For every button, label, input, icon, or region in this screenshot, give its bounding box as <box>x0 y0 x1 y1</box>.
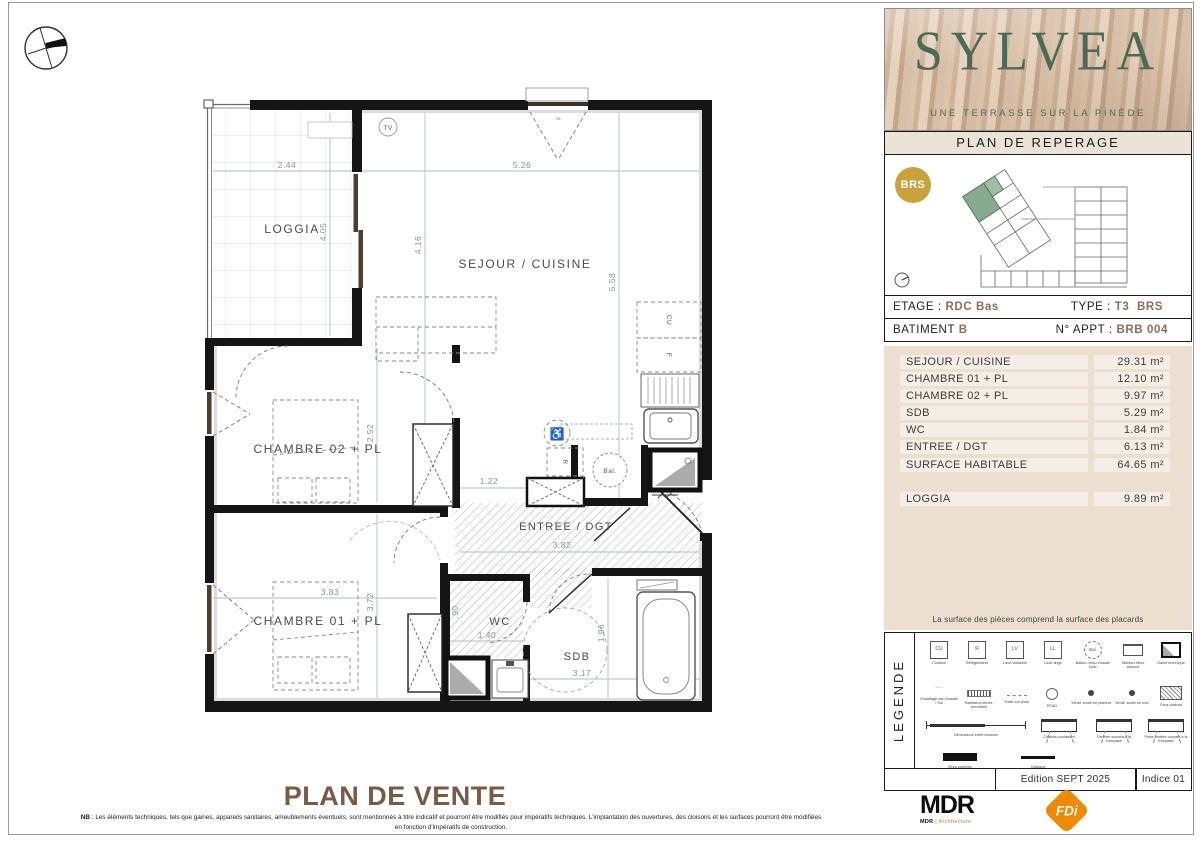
cloison-icon <box>1021 756 1055 759</box>
dim-wc-h: .90 <box>450 605 460 618</box>
appt-label: N° APPT : <box>1056 324 1117 336</box>
mur-porteur-icon <box>943 753 977 761</box>
legend-item: Gaine technique <box>1153 641 1189 665</box>
etage-value: RDC Bas <box>946 301 999 313</box>
legend-item: ~ ~ ~Chauffage eau chaude / Sol <box>919 685 959 706</box>
fdi-logo-text: FDi <box>1056 803 1078 818</box>
dim-entry-pl-w: 1.22 <box>480 476 499 486</box>
legend-item: Cloisons <box>1003 749 1073 769</box>
legend-item: Porte-fenêtre ouvrant à la française <box>1143 717 1189 744</box>
dim-chambre1-h: 3.72 <box>365 593 375 612</box>
batiment-label: BATIMENT <box>893 324 959 336</box>
surface-row: CHAMBRE 02 + PL9.97 m² <box>900 389 1176 403</box>
lave-linge-icon: LL <box>1044 641 1062 659</box>
appt-value: BRB 004 <box>1116 324 1168 336</box>
legend-item: CUCuisson <box>921 641 957 665</box>
dimension-line-icon <box>926 721 1026 729</box>
mdr-logo-subtext: MDR | Architecture <box>920 819 974 825</box>
room-label-chambre1: CHAMBRE 01 + PL <box>253 614 382 628</box>
refrigerateur-symbol: R <box>561 459 568 464</box>
surface-row: SEJOUR / CUISINE29.31 m² <box>900 355 1176 369</box>
dim-loggia-h: 4.05 <box>318 223 328 242</box>
type-value: T3 BRS <box>1115 301 1163 313</box>
etage-label: ETAGE : <box>893 301 946 313</box>
nb-footnote-line2: en fonction d'impératifs de construction… <box>395 824 507 831</box>
surface-label: ENTREE / DGT <box>900 440 1088 454</box>
surface-label: SEJOUR / CUISINE <box>900 355 1088 369</box>
surface-value: 6.13 m² <box>1094 440 1170 454</box>
legend-item: Bal.Ballon d'eau chaude indiv. <box>1073 641 1113 670</box>
info-row-batiment-appt: BATIMENT B N° APPT : BRB 004 <box>884 318 1192 342</box>
legend-title: LEGENDE <box>884 633 915 768</box>
surfaces-panel: SEJOUR / CUISINE29.31 m² CHAMBRE 01 + PL… <box>884 346 1192 630</box>
ballon-icon: Bal. <box>1084 641 1102 659</box>
surface-label: WC <box>900 423 1088 437</box>
surface-row-total: SURFACE HABITABLE64.65 m² <box>900 458 1176 472</box>
dim-sejour-h-right: 5.58 <box>607 273 617 292</box>
plan-de-vente-sheet: ♿ Bal. TV CU F R VB LOGGIA SEJOUR / CUIS… <box>0 0 1200 848</box>
dim-chambre1-w: 3.83 <box>321 587 340 597</box>
dim-sdb-w: 3.17 <box>573 668 592 678</box>
mdr-logo: MDR MDR | Architecture <box>920 793 974 825</box>
edition-row: Edition SEPT 2025 Indice 01 <box>884 768 1192 791</box>
room-label-chambre2: CHAMBRE 02 + PL <box>253 442 382 456</box>
nb-footnote-bold: NB <box>81 814 90 821</box>
surface-value: 1.84 m² <box>1094 423 1170 437</box>
surface-value: 29.31 m² <box>1094 355 1170 369</box>
nb-footnote-line1: : Les éléments techniques, tels que gain… <box>90 814 821 821</box>
vb-label: VB <box>555 117 561 121</box>
surface-value: 64.65 m² <box>1094 458 1170 472</box>
dim-entree-w: 3.82 <box>553 540 572 550</box>
legend-box: LEGENDE CUCuisson RRéfrigérateur LVLave-… <box>884 632 1192 769</box>
mdr-logo-text: MDR <box>920 793 974 818</box>
wheelchair-icon: ♿ <box>550 427 565 441</box>
porte-fenetre-icon <box>1148 719 1184 732</box>
floor-plan: ♿ Bal. TV CU F R VB LOGGIA SEJOUR / CUIS… <box>0 0 884 790</box>
type-label: TYPE : <box>1071 301 1115 313</box>
surface-value: 9.89 m² <box>1094 492 1170 506</box>
surfaces-note: La surface des pièces comprend la surfac… <box>884 615 1192 624</box>
legend-item: Dimensions entre cloisons <box>921 717 1031 737</box>
chassis-coulissant-icon <box>1041 719 1077 732</box>
faux-plafond-icon <box>1160 686 1182 700</box>
legend-item: RRéfrigérateur <box>959 641 995 665</box>
brand-name: SYLVEA <box>884 20 1192 84</box>
room-label-loggia: LOGGIA <box>264 222 320 236</box>
surface-label: CHAMBRE 01 + PL <box>900 372 1088 386</box>
tableau-electrique-icon <box>1123 644 1143 656</box>
surface-row: WC1.84 m² <box>900 423 1176 437</box>
chauffage-sol-icon: ~ ~ ~ <box>919 685 959 697</box>
legend-item: Ventil. sortie en plafond <box>1071 685 1111 705</box>
room-label-entree: ENTREE / DGT <box>519 521 613 533</box>
legend-title-text: LEGENDE <box>892 659 907 742</box>
surface-label: SDB <box>900 406 1088 420</box>
vmc-mur-icon <box>1129 690 1135 696</box>
room-label-sdb: SDB <box>564 651 591 663</box>
legend-item: Radiateur sèche-serviettes <box>959 685 999 710</box>
cuisson-icon: CU <box>930 641 948 659</box>
surface-label: LOGGIA <box>900 492 1088 506</box>
batiment-value: B <box>959 324 968 336</box>
room-label-wc: WC <box>489 616 510 628</box>
surface-row: SDB5.29 m² <box>900 406 1176 420</box>
edition-empty-cell <box>884 768 996 791</box>
fdi-logo: FDi <box>1043 787 1090 834</box>
dalle-icon <box>1007 690 1027 696</box>
legend-item: Murs porteurs <box>925 749 995 769</box>
legend-item: Ventil. sortie en mur <box>1113 685 1151 705</box>
dim-sejour-w: 5.26 <box>513 160 532 170</box>
surface-value: 5.29 m² <box>1094 406 1170 420</box>
nb-footnote: NB : Les éléments techniques, tels que g… <box>28 813 874 832</box>
gaine-icon <box>1161 642 1181 658</box>
legend-item: LVLave-vaisselle <box>997 641 1033 665</box>
refrigerateur-icon: R <box>968 641 986 659</box>
info-row-etage-type: ETAGE : RDC Bas TYPE : T3 BRS <box>884 295 1192 319</box>
surface-label: SURFACE HABITABLE <box>900 458 1088 472</box>
legend-item: Tableau élect. abonné <box>1115 641 1151 670</box>
ballon-symbol: Bal. <box>603 468 616 475</box>
surface-value: 9.97 m² <box>1094 389 1170 403</box>
lave-vaisselle-icon: LV <box>1006 641 1024 659</box>
surface-value: 12.10 m² <box>1094 372 1170 386</box>
room-label-sejour: SEJOUR / CUISINE <box>459 257 592 271</box>
dim-chambre2-h: 2.52 <box>365 424 375 443</box>
dim-sdb-h: 1.96 <box>596 624 606 643</box>
legend-item: Châssis coulissant <box>1037 717 1081 739</box>
surface-row: ENTREE / DGT6.13 m² <box>900 440 1176 454</box>
cuisson-symbol: CU <box>665 315 672 325</box>
legend-item: LLLave-linge <box>1035 641 1071 665</box>
edition-date: Edition SEPT 2025 <box>995 768 1137 791</box>
legend-item: PEAD <box>1035 685 1069 708</box>
edition-indice: Indice 01 <box>1135 768 1192 791</box>
pead-icon <box>1046 688 1058 700</box>
reperage-mini-plan <box>925 159 1185 291</box>
reperage-title: PLAN DE REPERAGE <box>884 131 1192 155</box>
fenetre-icon <box>1096 719 1132 732</box>
surface-row: CHAMBRE 01 + PL12.10 m² <box>900 372 1176 386</box>
legend-item: Fenêtre ouvrant à la française <box>1091 717 1137 744</box>
frigo-symbol: F <box>665 353 672 357</box>
dim-sejour-h-left: 4.16 <box>413 236 423 255</box>
vmc-plafond-icon <box>1088 690 1094 696</box>
mini-compass-icon <box>893 271 911 289</box>
radiateur-icon <box>967 690 991 697</box>
reperage-box: BRS <box>884 154 1192 296</box>
brand-tagline: UNE TERRASSE SUR LA PINÈDE <box>884 108 1192 119</box>
plan-title: PLAN DE VENTE <box>280 781 510 812</box>
dim-loggia-w: 2.44 <box>278 160 297 170</box>
dim-wc-w: 1.40 <box>478 630 497 640</box>
legend-item: Faux plafond <box>1153 685 1189 707</box>
tv-symbol: TV <box>383 125 392 132</box>
legend-item: Dalle sur plots <box>999 685 1035 704</box>
surface-label: CHAMBRE 02 + PL <box>900 389 1088 403</box>
surface-row-loggia: LOGGIA9.89 m² <box>900 492 1176 506</box>
logos-area: MDR MDR | Architecture FDi <box>884 791 1192 835</box>
